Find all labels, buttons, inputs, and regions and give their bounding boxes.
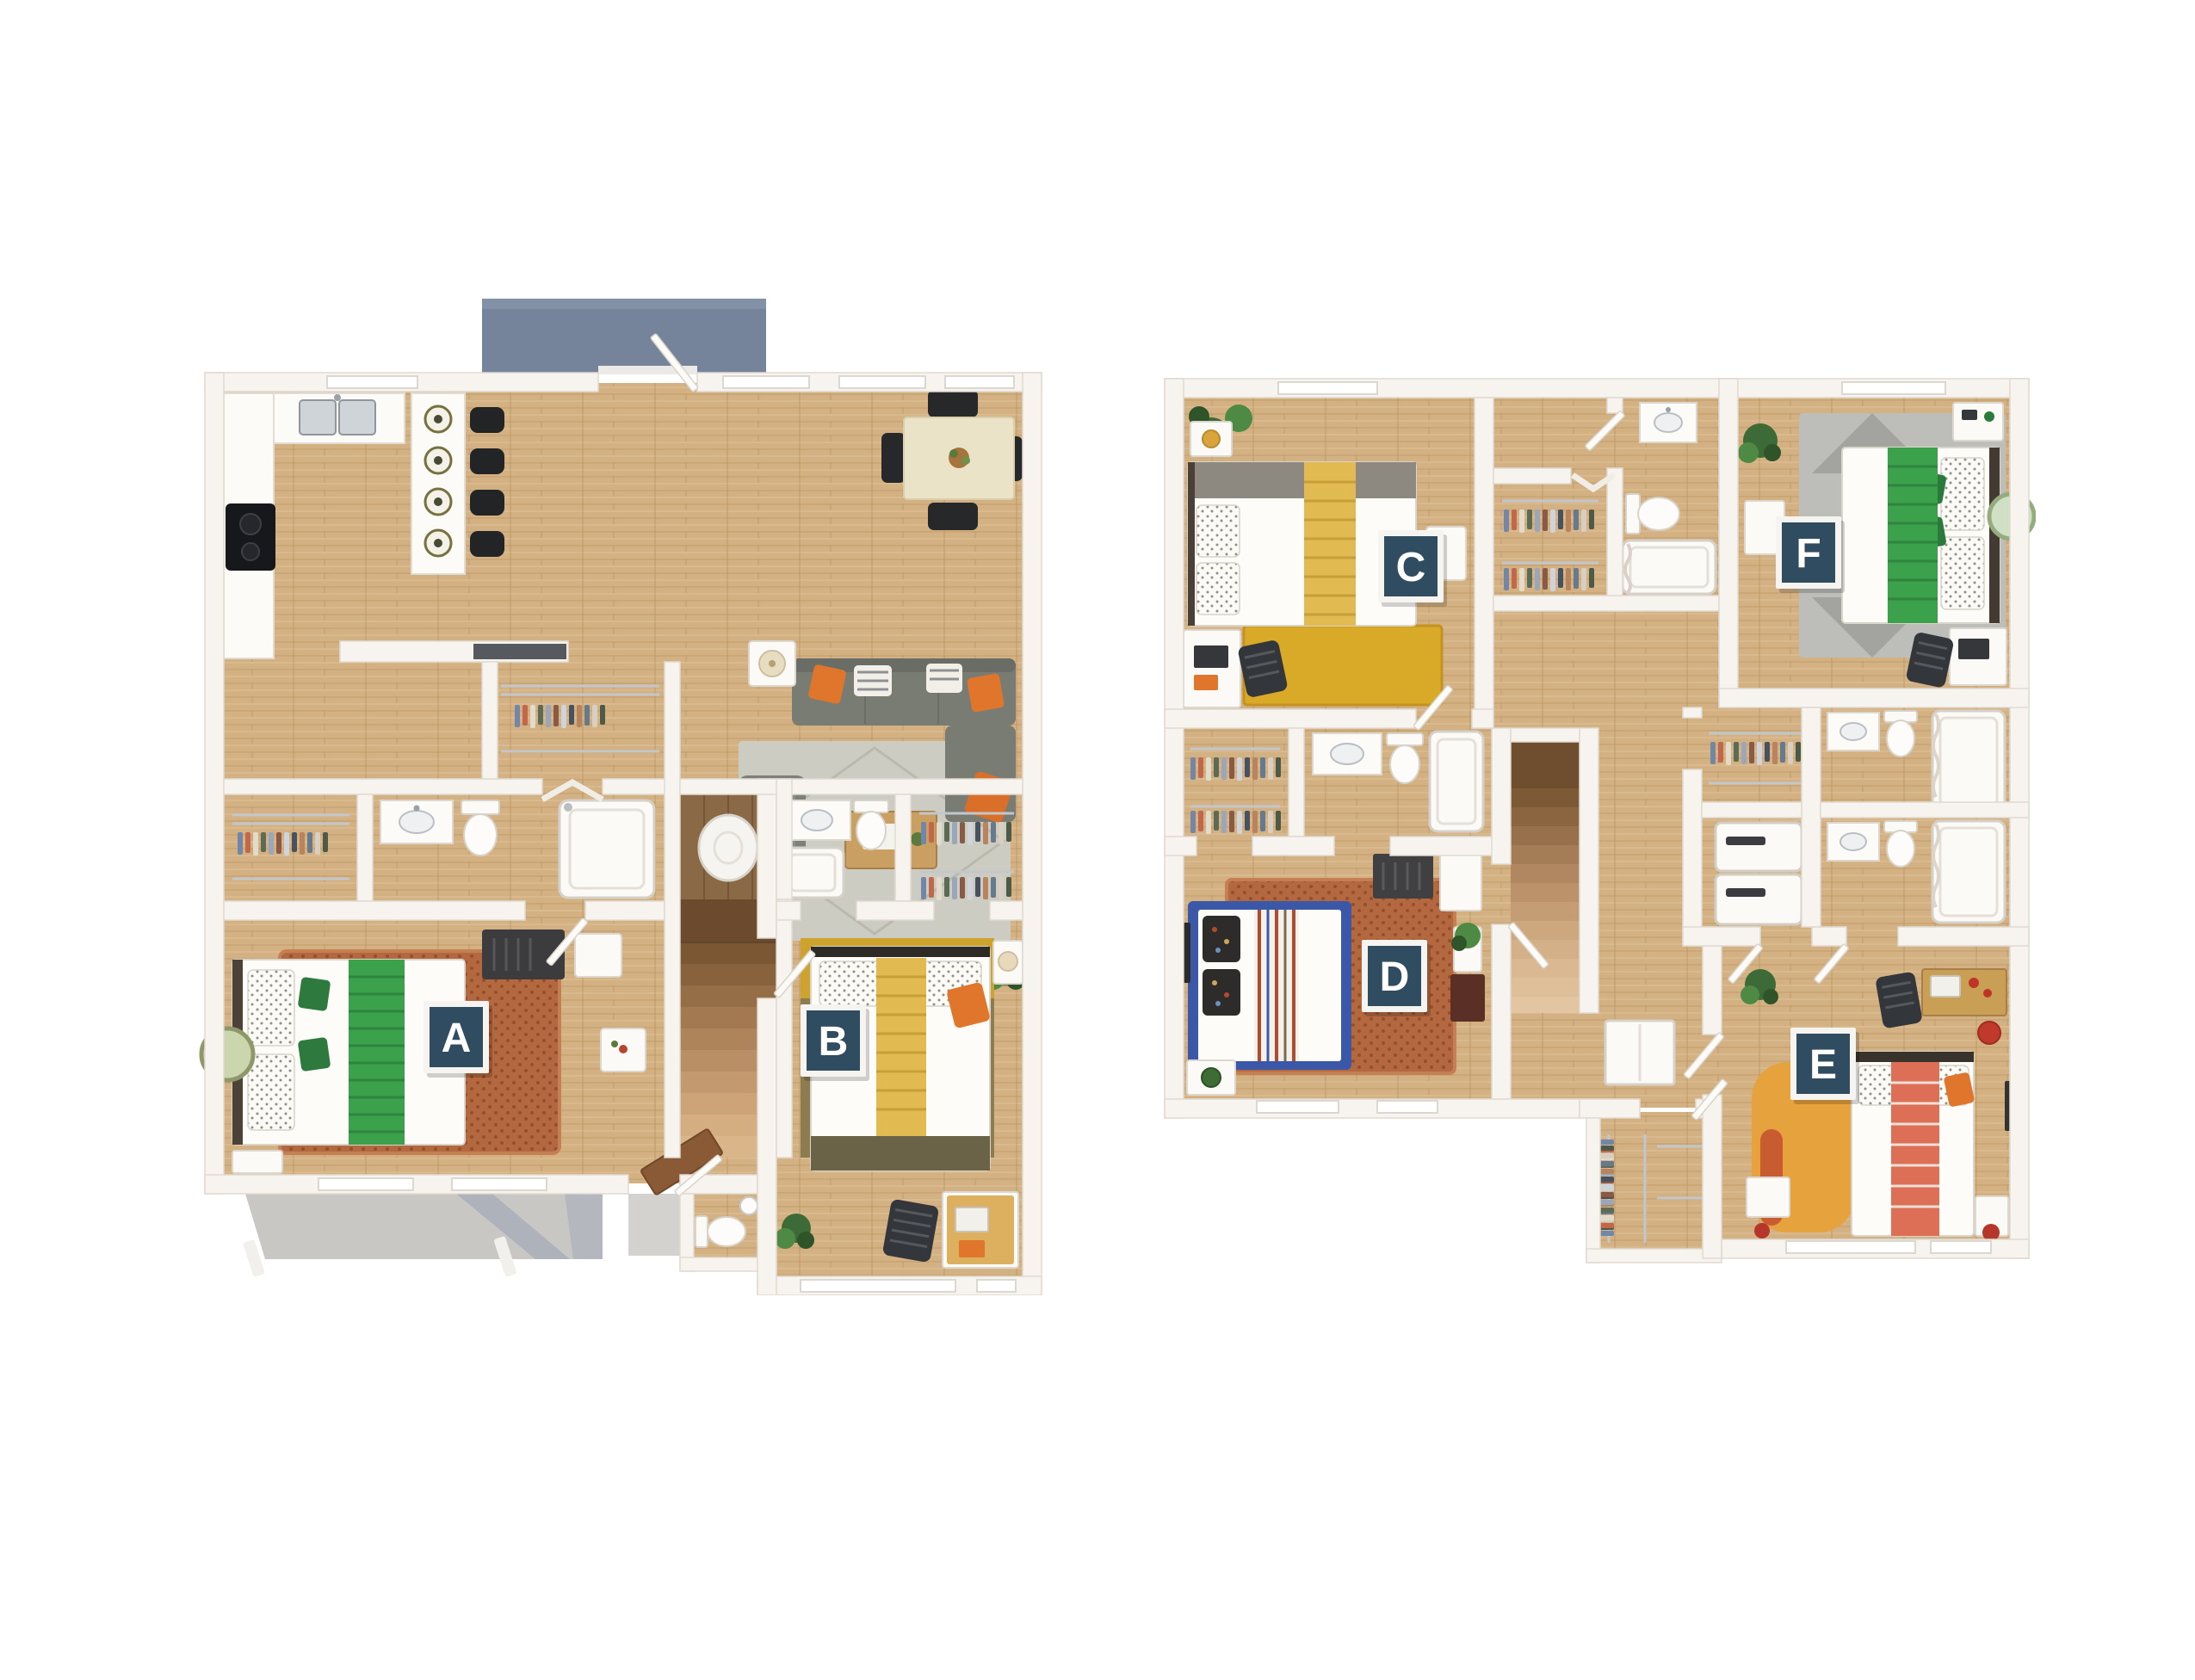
unit-badge-a: A	[424, 1001, 492, 1078]
desk-chair	[882, 1199, 940, 1263]
cabinet	[1440, 847, 1481, 911]
badge-letter-d: D	[1380, 954, 1410, 1000]
unit-badge-e: E	[1790, 1028, 1859, 1104]
throw-pillow-orange	[807, 664, 846, 704]
red-stool	[1978, 1022, 2000, 1044]
plant-stand	[1450, 923, 1485, 1022]
vanity-sink	[1827, 823, 1879, 861]
vanity-sink	[1640, 403, 1697, 442]
shower	[1430, 732, 1483, 831]
dining-chair	[881, 433, 906, 483]
dryer	[1716, 874, 1802, 924]
bathtub	[1623, 540, 1716, 594]
nightstand	[232, 1151, 282, 1173]
laundry-closet	[1716, 823, 1802, 924]
dining-chair	[928, 390, 978, 417]
floor-plan-page: A B	[0, 0, 2195, 1680]
washer	[1716, 823, 1802, 871]
badge-letter-a: A	[442, 1016, 472, 1061]
side-table-lamp	[749, 641, 795, 686]
vanity-sink	[380, 800, 453, 843]
dining-chair	[928, 503, 978, 530]
vanity-sink	[1827, 713, 1879, 750]
linen-cabinet	[1605, 1021, 1674, 1084]
desk-e	[1922, 969, 2006, 1016]
nightstand-lamp	[1190, 422, 1232, 456]
shower-tub	[1932, 821, 2005, 923]
toilet	[1884, 821, 1917, 867]
closet-e-floor	[1597, 1112, 1717, 1254]
toilet	[1387, 733, 1423, 783]
unit-badge-c: C	[1378, 530, 1447, 607]
nightstand	[1187, 1060, 1235, 1095]
bed-e	[1852, 1052, 1975, 1236]
vanity-sink	[1313, 733, 1382, 775]
unit-badge-b: B	[801, 1004, 869, 1081]
floor-plan-first-floor: A B	[198, 297, 1059, 1295]
bed-f	[1842, 448, 2000, 623]
bed-d	[1188, 901, 1351, 1070]
half-wall-counter	[473, 644, 566, 659]
desk-b	[943, 1192, 1018, 1268]
toilet	[854, 800, 888, 849]
vanity-sink	[783, 800, 850, 840]
throw-pillow-orange	[967, 673, 1005, 713]
floor-plan-second-floor: C D E F	[1158, 372, 2036, 1267]
dresser	[1373, 854, 1433, 899]
nightstand-lamp	[993, 941, 1023, 984]
stairs	[1511, 742, 1580, 1013]
cooktop	[226, 503, 275, 571]
dresser	[1953, 403, 2003, 441]
bench	[575, 934, 621, 977]
toilet	[1884, 711, 1917, 757]
toilet	[461, 800, 499, 855]
balcony	[482, 299, 766, 374]
badge-letter-e: E	[1809, 1042, 1837, 1088]
toilet	[1626, 494, 1679, 534]
nightstand	[1976, 1196, 2008, 1241]
pedestal-sink	[740, 1197, 757, 1214]
toilet	[696, 1216, 745, 1247]
shower	[560, 800, 654, 898]
shower-tub	[1932, 711, 2005, 812]
badge-letter-c: C	[1396, 545, 1426, 590]
side-table	[601, 1028, 646, 1072]
badge-letter-b: B	[819, 1019, 849, 1065]
badge-letter-f: F	[1796, 531, 1821, 577]
unit-badge-d: D	[1362, 940, 1431, 1016]
desk-c	[1184, 630, 1240, 707]
desk-f	[1950, 628, 2006, 685]
unit-badge-f: F	[1776, 516, 1845, 593]
water-heater	[699, 815, 757, 880]
patio	[243, 1194, 680, 1277]
